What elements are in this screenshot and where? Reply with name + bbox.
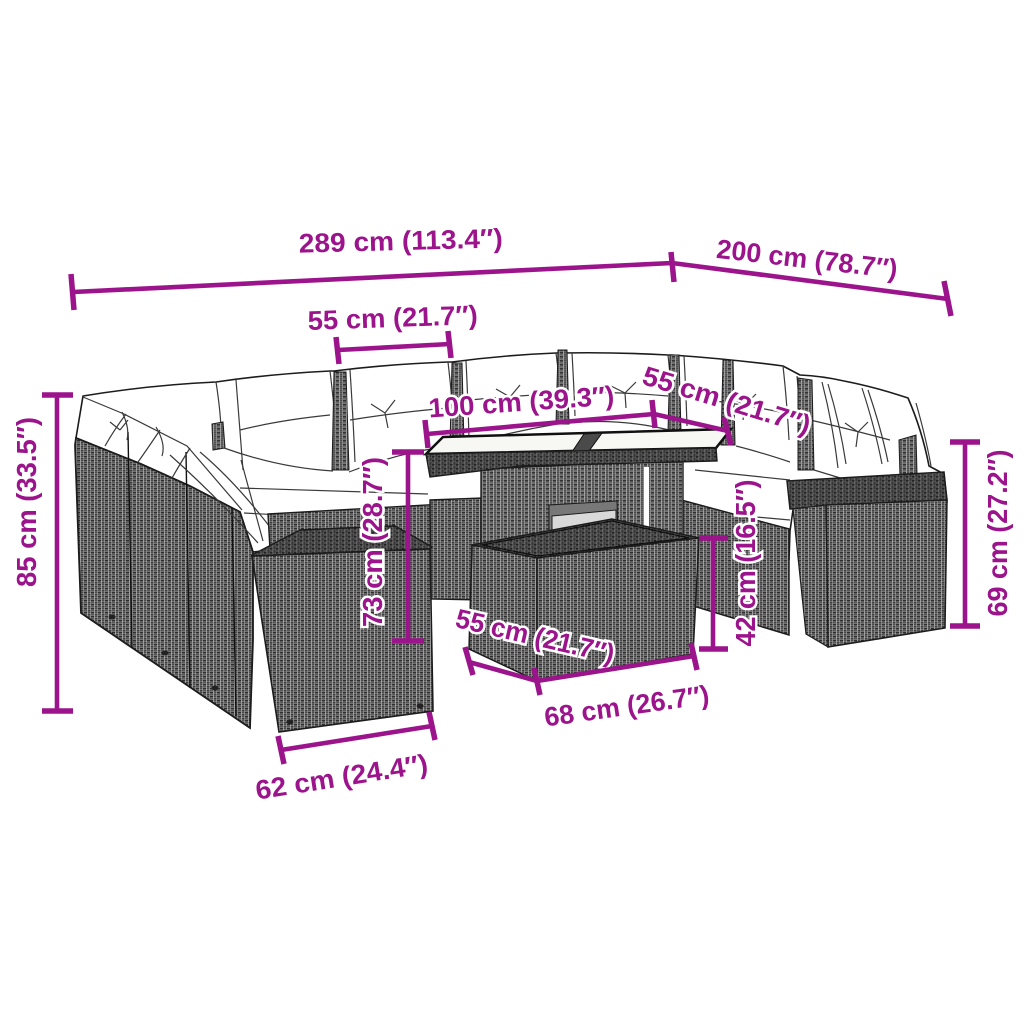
svg-text:42 cm (16.5″): 42 cm (16.5″)	[730, 480, 761, 647]
svg-text:289 cm (113.4″): 289 cm (113.4″)	[298, 223, 503, 258]
svg-text:55 cm (21.7″): 55 cm (21.7″)	[307, 300, 478, 336]
svg-text:73 cm (28.7″): 73 cm (28.7″)	[357, 457, 388, 627]
svg-text:85 cm (33.5″): 85 cm (33.5″)	[11, 417, 42, 587]
svg-text:69 cm (27.2″): 69 cm (27.2″)	[982, 450, 1013, 617]
